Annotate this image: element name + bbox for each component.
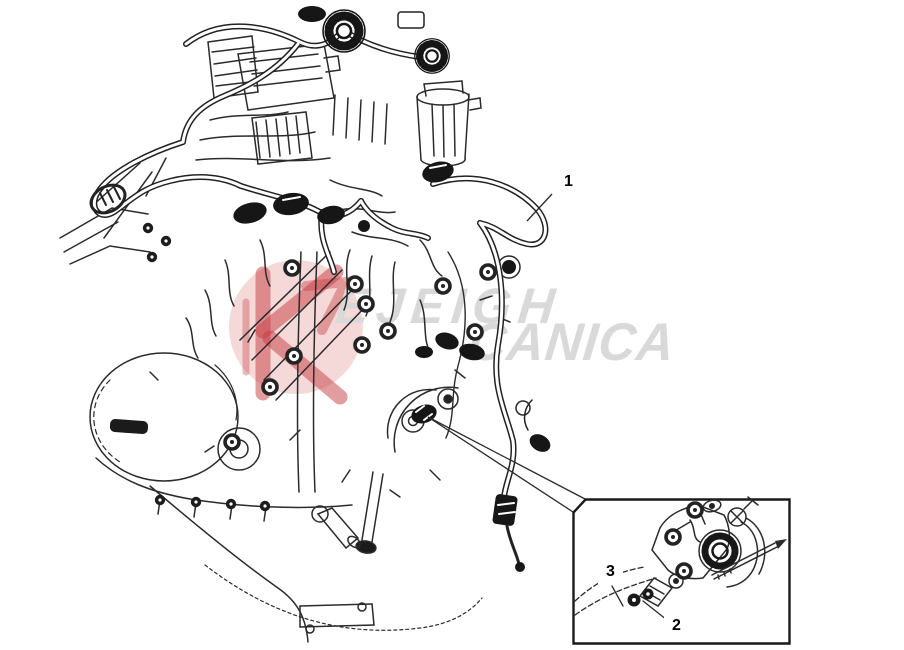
callout-1-label: 1 — [556, 170, 581, 194]
engine-cover-brand-badge — [110, 419, 149, 435]
wiring-harness-drawing — [86, 6, 553, 572]
round-connector-icon — [415, 39, 449, 73]
engine-line-art — [0, 0, 904, 650]
callout-leader-lines — [428, 194, 585, 512]
bolt-heads — [143, 223, 495, 511]
round-connector-icon — [323, 10, 365, 52]
engine-block-drawing — [60, 36, 530, 642]
parts-diagram-canvas: EJEIGH CANICA — [0, 0, 904, 650]
callout-3-label: 3 — [598, 560, 623, 584]
callout-2-label: 2 — [664, 614, 689, 638]
